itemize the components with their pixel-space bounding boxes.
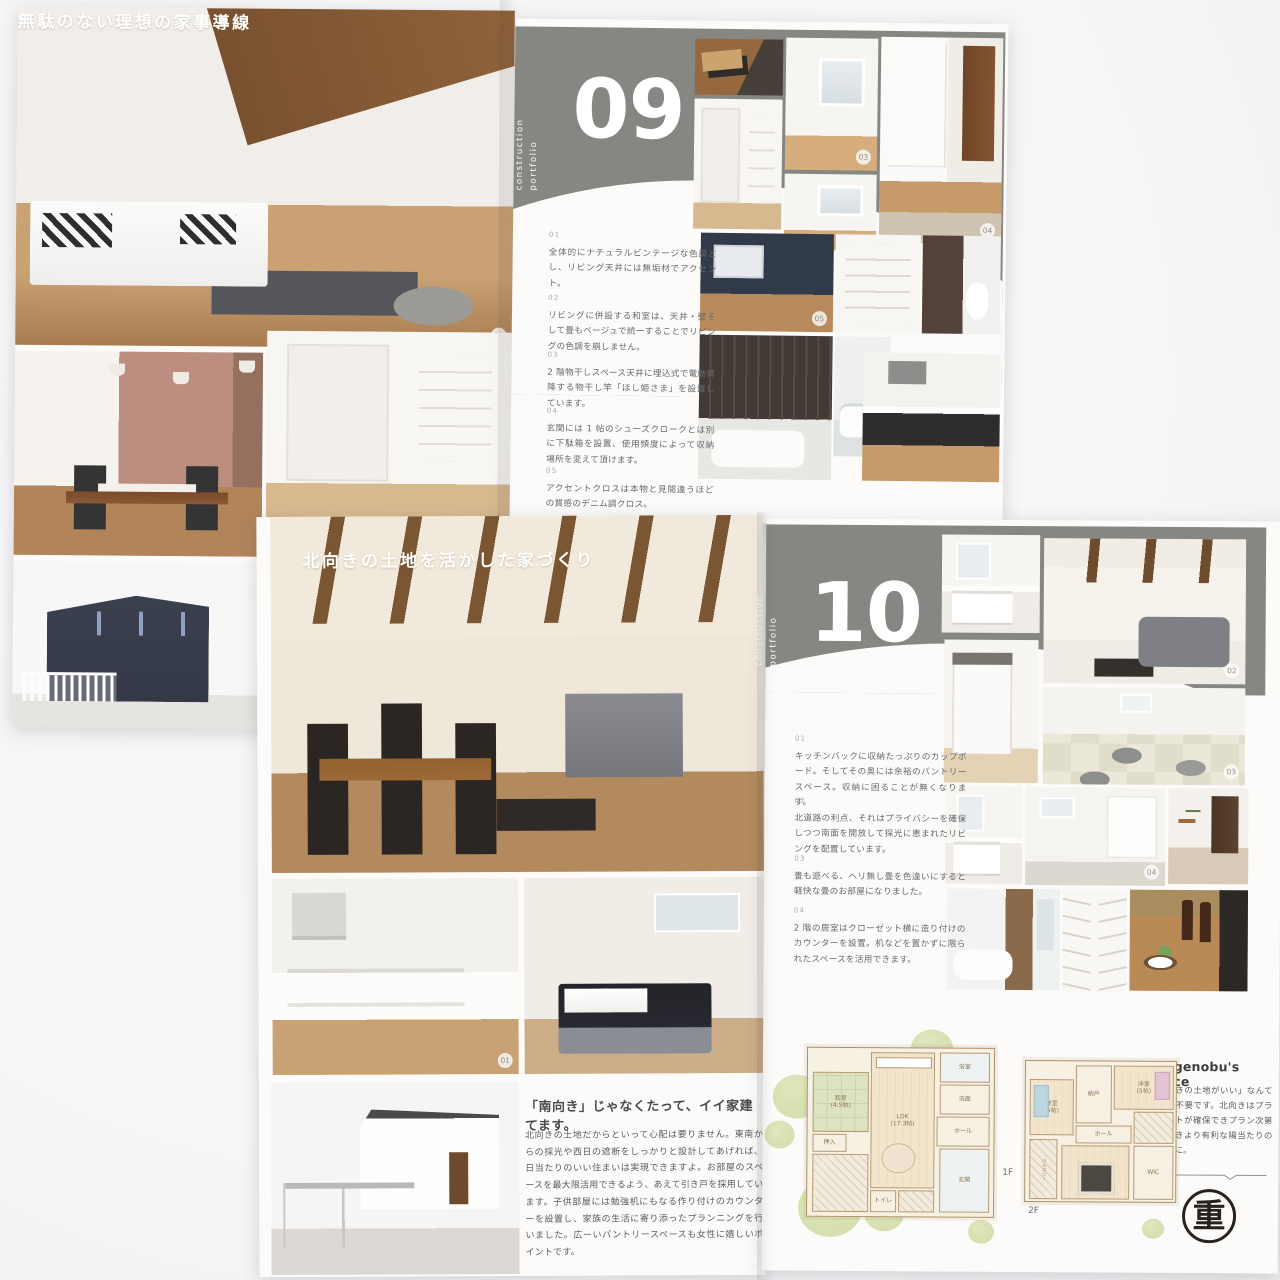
photo-living-room-09: 無駄のない理想の家事導線 01 [15, 7, 515, 349]
room-label: 寝室 (8帖) [1088, 1165, 1103, 1180]
room-label: 洋室 (5帖) [1044, 1100, 1059, 1115]
photo-entry-hallway-09: 04 [879, 37, 1004, 244]
photo-denim-accent-room-09: 05 [700, 233, 834, 333]
plan-room-hall: ホール [936, 1116, 989, 1146]
section-09-04: 04 玄関には 1 帖のシューズクロークとは別に下駄箱を設置、使用頻度によって収… [546, 407, 715, 470]
room-label: 納戸 [1088, 1091, 1100, 1099]
plan-room-washitsu: 和室 (4.5帖) [813, 1072, 869, 1132]
photo-tatami-room-10: 03 [1043, 687, 1246, 785]
company-logo: 重 [1182, 1189, 1236, 1243]
portfolio-word-construction: construction [513, 118, 527, 190]
plan-stairs-1f [898, 1190, 934, 1212]
floorplan-1f-label: 1F [1002, 1168, 1013, 1178]
section-text: 2 階の居室はクローゼット横に造り付けのカウンターを設置。机などを置かずに限られ… [794, 922, 966, 969]
photo-pantry-shelves-10 [1062, 889, 1127, 992]
photo-toilet-09 [922, 235, 1001, 334]
plan-room-shinshitsu: 寝室 (8帖) [1061, 1145, 1129, 1199]
section-number: 03 [794, 855, 966, 864]
section-number: 01 [795, 735, 967, 744]
photo-number-badge: 05 [812, 311, 827, 326]
section-09-03: 03 2 階物干しスペース天井に埋込式で電動昇降する物干し竿「ほし姫さま」を設置… [547, 351, 716, 414]
photo-number-badge: 02 [1224, 663, 1239, 678]
section-text: 北道路の利点、それはプライバシーを確保しつつ南面を開放して採光に恵まれたリビング… [794, 812, 966, 859]
photo-closet-09 [266, 331, 512, 523]
plan-room-senmen: 洗面 [940, 1085, 990, 1115]
watercolor-blob [1142, 1219, 1164, 1239]
section-number: 04 [547, 407, 715, 417]
photo-washbasin-a-10 [942, 535, 1041, 634]
floorplan-2f: 洋室 (5帖) 納戸 洋室 (5帖) ホール バルコニー 寝室 (8帖) WIC [1024, 1060, 1177, 1203]
section-09-05: 05 アクセントクロスは本物と見間違うほどの質感のデニム調クロス。 [546, 467, 715, 515]
section-number: 04 [794, 907, 966, 916]
portfolio-word-portfolio: portfolio [767, 594, 781, 666]
plan-room-ldk: LDK (17.3帖) [870, 1052, 935, 1188]
photo-bedroom-10 [524, 877, 765, 1074]
room-label: 和室 (4.5帖) [831, 1094, 851, 1109]
photo-shelf-room-09 [835, 234, 921, 333]
room-label: ホール [954, 1128, 972, 1136]
photo-dining-bottles-10 [1129, 890, 1248, 992]
watercolor-blob [968, 1220, 994, 1244]
photo-desk-decor-09 [695, 39, 784, 96]
watercolor-blob [764, 1120, 794, 1148]
photo-exterior-navy-house [12, 561, 258, 729]
plan-room-bath: 浴室 [940, 1053, 990, 1083]
plan-balcony: バルコニー [1029, 1139, 1057, 1199]
section-09-01: 01 全体的にナチュラルビンテージな色調とし、リビング天井には無垢材でアクセント… [548, 231, 717, 294]
section-number: 02 [548, 294, 716, 304]
plan-room-toilet: トイレ [870, 1190, 896, 1212]
plan-room-nando: 納戸 [1076, 1065, 1112, 1123]
page09-heading: 無駄のない理想の家事導線 [18, 7, 252, 34]
section-text: リビングに併設する和室は、天井・壁そして畳もベージュで統一することでリビングの色… [547, 309, 716, 357]
plan-room-hall-2f: ホール [1075, 1125, 1131, 1143]
spread-10: 北向きの土地を活かした家づくり 01 「南向き」じゃなくたって、イイ家建てます。… [255, 512, 1280, 1280]
room-label: バルコニー [1040, 1158, 1046, 1181]
portfolio-vertical-label-09: construction portfolio [513, 118, 544, 190]
photo-entry-10 [1168, 788, 1249, 884]
section-10-03: 03 畳も遊べる、ヘリ無し畳を色違いにすると軽快な畳のお部屋になりました。 [794, 855, 966, 902]
page10-heading: 北向きの土地を活かした家づくり [302, 546, 595, 572]
plan-room-oshiire: 押入 [812, 1134, 846, 1152]
minamimuki-paragraph: 北向きの土地だからといって心配は要りません。東南からの採光や西日の遮断をしっかり… [525, 1127, 764, 1262]
page-09-right: construction portfolio 09 01 全体的にナチュラルビン… [509, 18, 1008, 526]
section-09-02: 02 リビングに併設する和室は、天井・壁そして畳もベージュで統一することでリビン… [547, 294, 716, 357]
section-text: 全体的にナチュラルビンテージな色調とし、リビング天井には無垢材でアクセント。 [548, 246, 717, 294]
floorplan-2f-label: 2F [1028, 1206, 1039, 1216]
room-label: 押入 [823, 1139, 835, 1147]
portfolio-vertical-label-10: construction portfolio [753, 594, 783, 666]
plan-room-yoshitsu1: 洋室 (5帖) [1030, 1079, 1074, 1135]
photo-number-badge: 03 [1224, 764, 1239, 779]
section-number: 05 [546, 467, 714, 477]
photo-living-sofa-10: 02 [1043, 538, 1246, 684]
photo-exterior-white-house [271, 1082, 520, 1275]
photo-dining-washitsu-09 [14, 351, 264, 557]
photo-bathroom-dark-09 [698, 335, 833, 481]
photo-white-room-09: 03 [785, 38, 879, 171]
portfolio-word-portfolio: portfolio [527, 118, 541, 190]
plan-porch [812, 1154, 868, 1212]
section-text: 玄関には 1 帖のシューズクロークとは別に下駄箱を設置、使用頻度によって収納場所… [546, 422, 715, 470]
brochure-photo-canvas: 無駄のない理想の家事導線 01 construction portfolio 0… [0, 0, 1280, 1280]
photo-kitchen-10: 01 [272, 878, 519, 1075]
portfolio-number-09: 09 [572, 69, 685, 152]
room-label: LDK (17.3帖) [891, 1113, 915, 1128]
room-label: WIC [1147, 1169, 1159, 1177]
room-label: 浴室 [959, 1064, 971, 1072]
room-label: ホール [1095, 1131, 1113, 1139]
section-number: 01 [549, 231, 717, 241]
photo-bedroom-counter-10: 04 [1025, 787, 1166, 886]
photo-number-badge: 03 [856, 150, 871, 165]
section-10-02: 02 北道路の利点、それはプライバシーを確保しつつ南面を開放して採光に恵まれたリ… [794, 797, 966, 859]
section-10-04: 04 2 階の居室はクローゼット横に造り付けのカウンターを設置。机などを置かずに… [794, 907, 966, 969]
photo-number-badge: 04 [1144, 865, 1159, 880]
plan-room-wic: WIC [1133, 1146, 1173, 1200]
plan-room-genkan: 玄関 [939, 1149, 989, 1213]
floorplan-1f: 和室 (4.5帖) LDK (17.3帖) 浴室 洗面 押入 ホール トイレ 玄… [806, 1047, 995, 1218]
portfolio-number-10: 10 [809, 573, 922, 656]
portfolio-word-construction: construction [753, 594, 767, 666]
page-10-left: 北向きの土地を活かした家づくり 01 「南向き」じゃなくたって、イイ家建てます。… [256, 515, 765, 1277]
section-number: 02 [795, 797, 967, 806]
room-label: 玄関 [958, 1177, 970, 1185]
room-label: トイレ [874, 1197, 892, 1205]
plan-stairs-2f [1133, 1112, 1173, 1144]
photo-living-dining-10: 北向きの土地を活かした家づくり [270, 515, 764, 873]
room-label: 洗面 [959, 1096, 971, 1104]
page-10-right: construction portfolio 10 01 キッチンバックに収納た… [762, 518, 1280, 1273]
photo-open-closet-09 [693, 99, 783, 230]
room-label: 洋室 (5帖) [1137, 1080, 1152, 1095]
section-text: 畳も遊べる、ヘリ無し畳を色違いにすると軽快な畳のお部屋になりました。 [794, 870, 966, 902]
section-text: アクセントクロスは本物と見間違うほどの質感のデニム調クロス。 [546, 482, 714, 515]
photo-kitchen-09 [862, 353, 1001, 483]
section-number: 03 [547, 351, 715, 361]
company-logo-kanji: 重 [1192, 1199, 1225, 1232]
photo-number-badge: 01 [498, 1053, 513, 1068]
plan-room-yoshitsu2: 洋室 (5帖) [1114, 1066, 1174, 1110]
